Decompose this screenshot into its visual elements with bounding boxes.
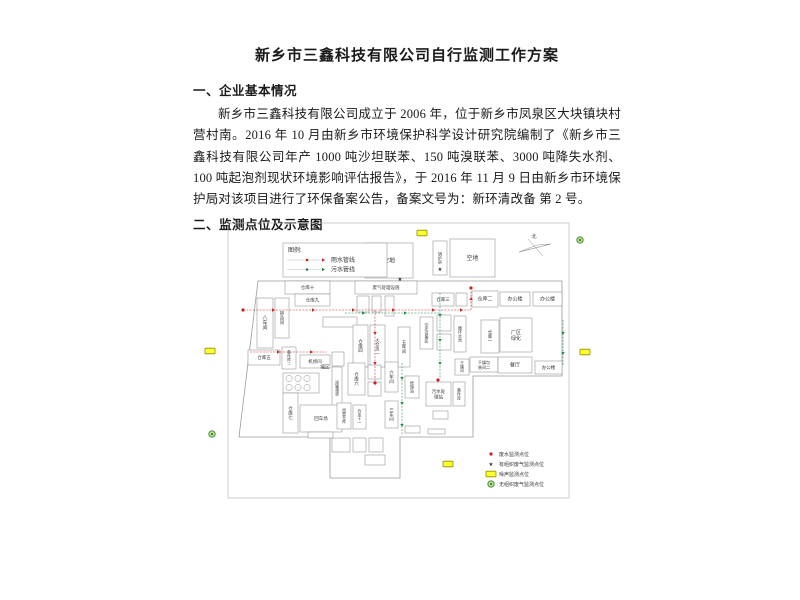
building-label: 仓库五 bbox=[257, 354, 271, 361]
site-plan-svg: 空地锅炉房空地仓库十仓库九八车间掺合间废气处理设施仓库三仓库二办公楼办公楼仓库四… bbox=[195, 215, 605, 505]
pipe-legend-dot bbox=[306, 259, 309, 262]
pipe-arrow bbox=[432, 308, 435, 311]
marker-wastewater-dot bbox=[373, 381, 376, 384]
pipe-legend-dot bbox=[306, 268, 309, 271]
pipe-arrow bbox=[400, 402, 403, 405]
building-label: 干燥包装间二 bbox=[478, 359, 490, 370]
pipe-legend-label: 雨水管线 bbox=[331, 256, 355, 264]
building-label: 五车间 bbox=[402, 340, 407, 355]
building bbox=[437, 334, 451, 350]
building bbox=[308, 432, 333, 438]
compass-north bbox=[519, 244, 551, 252]
pipe-arrow bbox=[460, 308, 463, 311]
marker-wastewater-dot bbox=[469, 286, 472, 289]
marker-wastewater-dot bbox=[436, 378, 439, 381]
building-label: 空地 bbox=[466, 254, 478, 262]
building bbox=[323, 317, 357, 327]
pipe-legend-label: 污水管线 bbox=[331, 266, 355, 274]
building-label: 仓库十 bbox=[301, 284, 315, 291]
building-label: 废气处理设施 bbox=[373, 284, 400, 291]
building-label: 仓库二 bbox=[477, 296, 492, 303]
building bbox=[433, 411, 448, 419]
monitor-legend-label: 废水监测点位 bbox=[499, 451, 529, 458]
building bbox=[369, 438, 383, 452]
building bbox=[405, 426, 420, 433]
building-label: 餐厅 bbox=[510, 362, 520, 369]
marker-noise bbox=[486, 471, 496, 477]
pipe-arrow bbox=[312, 308, 315, 311]
building-label: 仓库六 bbox=[354, 371, 359, 387]
building bbox=[428, 429, 445, 434]
building-label: 空压设备区 bbox=[425, 321, 429, 343]
building-label: 锅炉房 bbox=[438, 250, 442, 264]
marker-noise bbox=[417, 230, 427, 236]
building-label: 办公楼 bbox=[507, 296, 522, 303]
document-title: 新乡市三鑫科技有限公司自行监测工作方案 bbox=[193, 44, 621, 65]
document-page: 新乡市三鑫科技有限公司自行监测工作方案 一、企业基本情况 新乡市三鑫科技有限公司… bbox=[0, 0, 800, 600]
building-label: 厂区绿化 bbox=[511, 330, 521, 342]
marker-fugitive-gas-center bbox=[490, 483, 492, 485]
building-label: 掺合间 bbox=[280, 310, 285, 326]
pipe-arrow bbox=[400, 424, 403, 427]
marker-fugitive-gas-center bbox=[211, 433, 213, 435]
building-label: 闲置仓库 bbox=[342, 408, 346, 424]
building-label: 回车场 bbox=[314, 415, 328, 422]
building bbox=[456, 293, 467, 306]
monitor-legend-label: 噪声监测点位 bbox=[499, 471, 529, 478]
pipe-arrow bbox=[272, 308, 275, 311]
building bbox=[372, 296, 381, 312]
marker-noise bbox=[580, 349, 590, 355]
building-label: 罐区 bbox=[321, 363, 330, 370]
monitor-legend-label: 无组织废气监测点位 bbox=[499, 481, 544, 488]
building bbox=[365, 455, 385, 465]
building-label: 干燥间 bbox=[460, 361, 464, 373]
section-1-heading: 一、企业基本情况 bbox=[193, 80, 621, 99]
building-label: 办公楼 bbox=[540, 296, 555, 303]
document-body: 新乡市三鑫科技有限公司自行监测工作方案 一、企业基本情况 新乡市三鑫科技有限公司… bbox=[193, 44, 621, 233]
building bbox=[353, 438, 366, 452]
marker-stack-gas-star: ★ bbox=[489, 461, 494, 468]
marker-noise bbox=[443, 461, 453, 467]
building-label: 八车间 bbox=[262, 316, 267, 332]
compass-north-label: 北 bbox=[531, 233, 536, 240]
building-label: 仓库七 bbox=[288, 405, 293, 420]
building-label: 仓库四 bbox=[358, 338, 363, 353]
pipe-arrow bbox=[400, 377, 403, 380]
marker-wastewater-dot bbox=[241, 308, 244, 311]
building bbox=[368, 365, 381, 379]
marker-noise bbox=[205, 348, 215, 354]
tank-area bbox=[283, 373, 319, 393]
marker-stack-gas-star: ★ bbox=[438, 266, 443, 273]
building-label: 仓库十一 bbox=[358, 409, 362, 425]
monitor-legend-label: 有组织废气监测点位 bbox=[499, 461, 544, 468]
marker-wastewater-dot bbox=[489, 452, 492, 455]
building bbox=[332, 352, 344, 366]
pipe-legend-title: 图例: bbox=[288, 246, 302, 254]
building-label: 循环水池 bbox=[458, 324, 462, 342]
section-1-paragraph: 新乡市三鑫科技有限公司成立于 2006 年，位于新乡市凤泉区大块镇块村营村南。2… bbox=[193, 104, 621, 210]
building-label: 大仓库二 bbox=[376, 336, 380, 354]
building-label: 修理站 bbox=[410, 379, 414, 393]
building-label: 仓库三 bbox=[436, 296, 450, 303]
building-label: 六车间 bbox=[389, 369, 394, 385]
building-label: 仓库一 bbox=[488, 328, 493, 343]
marker-stack-gas-star: ★ bbox=[398, 276, 403, 283]
pipe-arrow bbox=[438, 362, 441, 365]
building bbox=[437, 315, 451, 331]
building bbox=[357, 296, 369, 312]
pipe-arrow bbox=[310, 350, 313, 353]
marker-fugitive-gas-center bbox=[579, 239, 581, 241]
building-label: 三车间 bbox=[389, 407, 394, 422]
building bbox=[332, 438, 350, 452]
pipe-arrow bbox=[352, 308, 355, 311]
building-label: 仓库九 bbox=[306, 296, 320, 303]
building-label: 运输通道 bbox=[335, 380, 339, 396]
pipe-arrow bbox=[404, 311, 407, 314]
building-label: 办公楼 bbox=[542, 364, 556, 371]
building-label: 备件库 bbox=[457, 386, 461, 400]
